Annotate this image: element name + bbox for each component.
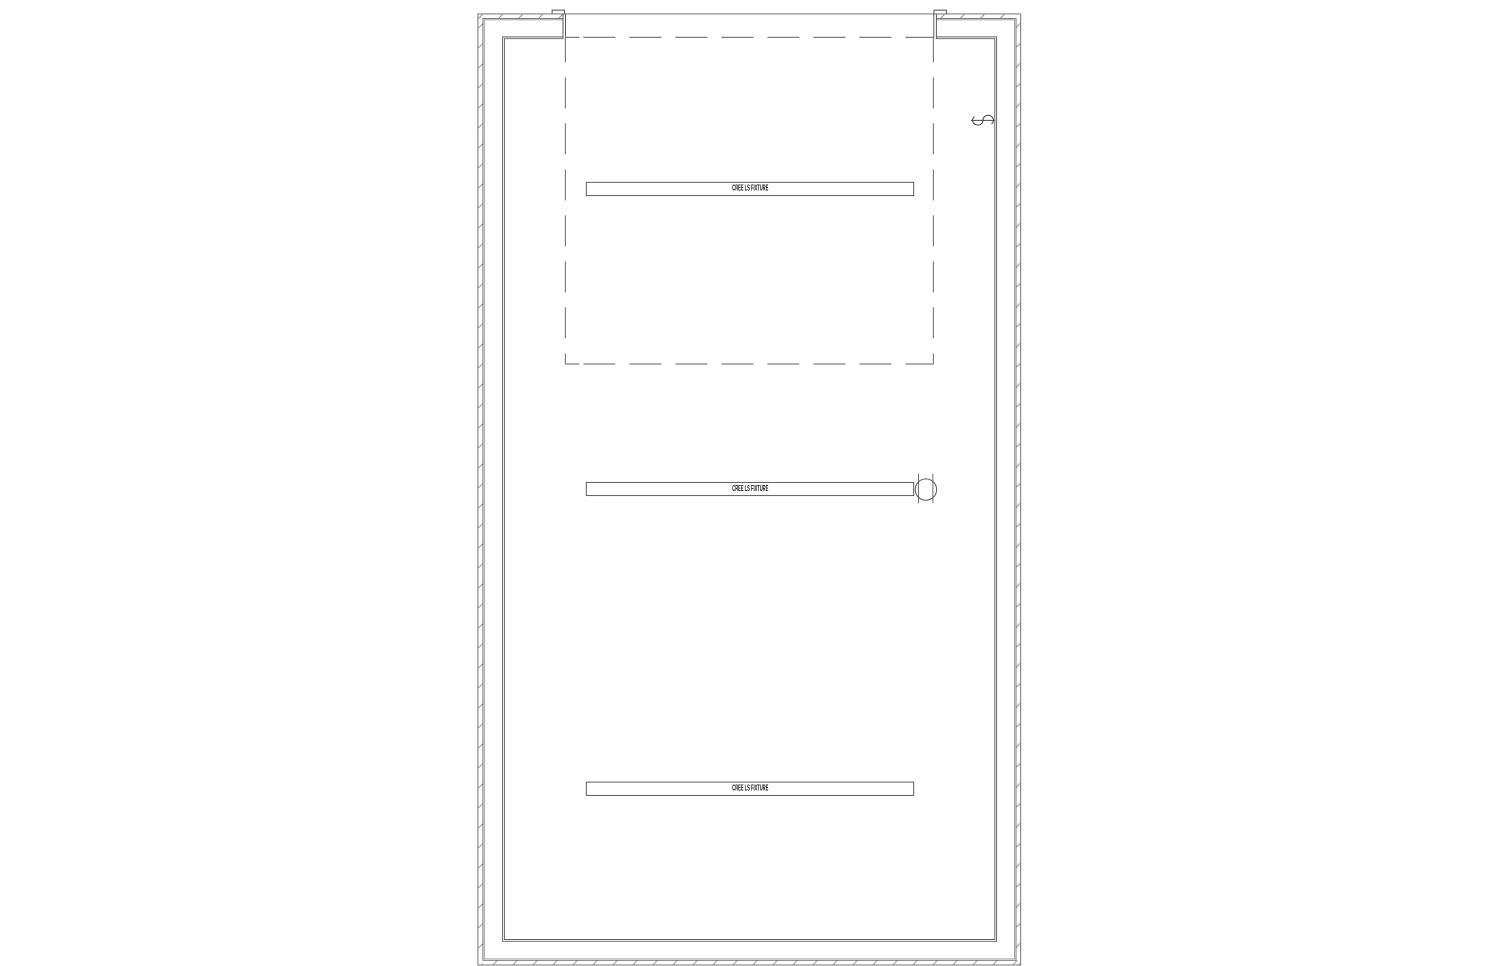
svg-text:CREE LS FIXTURE: CREE LS FIXTURE [732,483,768,493]
svg-text:CREE LS FIXTURE: CREE LS FIXTURE [732,183,768,193]
svg-text:CREE LS FIXTURE: CREE LS FIXTURE [732,783,768,793]
